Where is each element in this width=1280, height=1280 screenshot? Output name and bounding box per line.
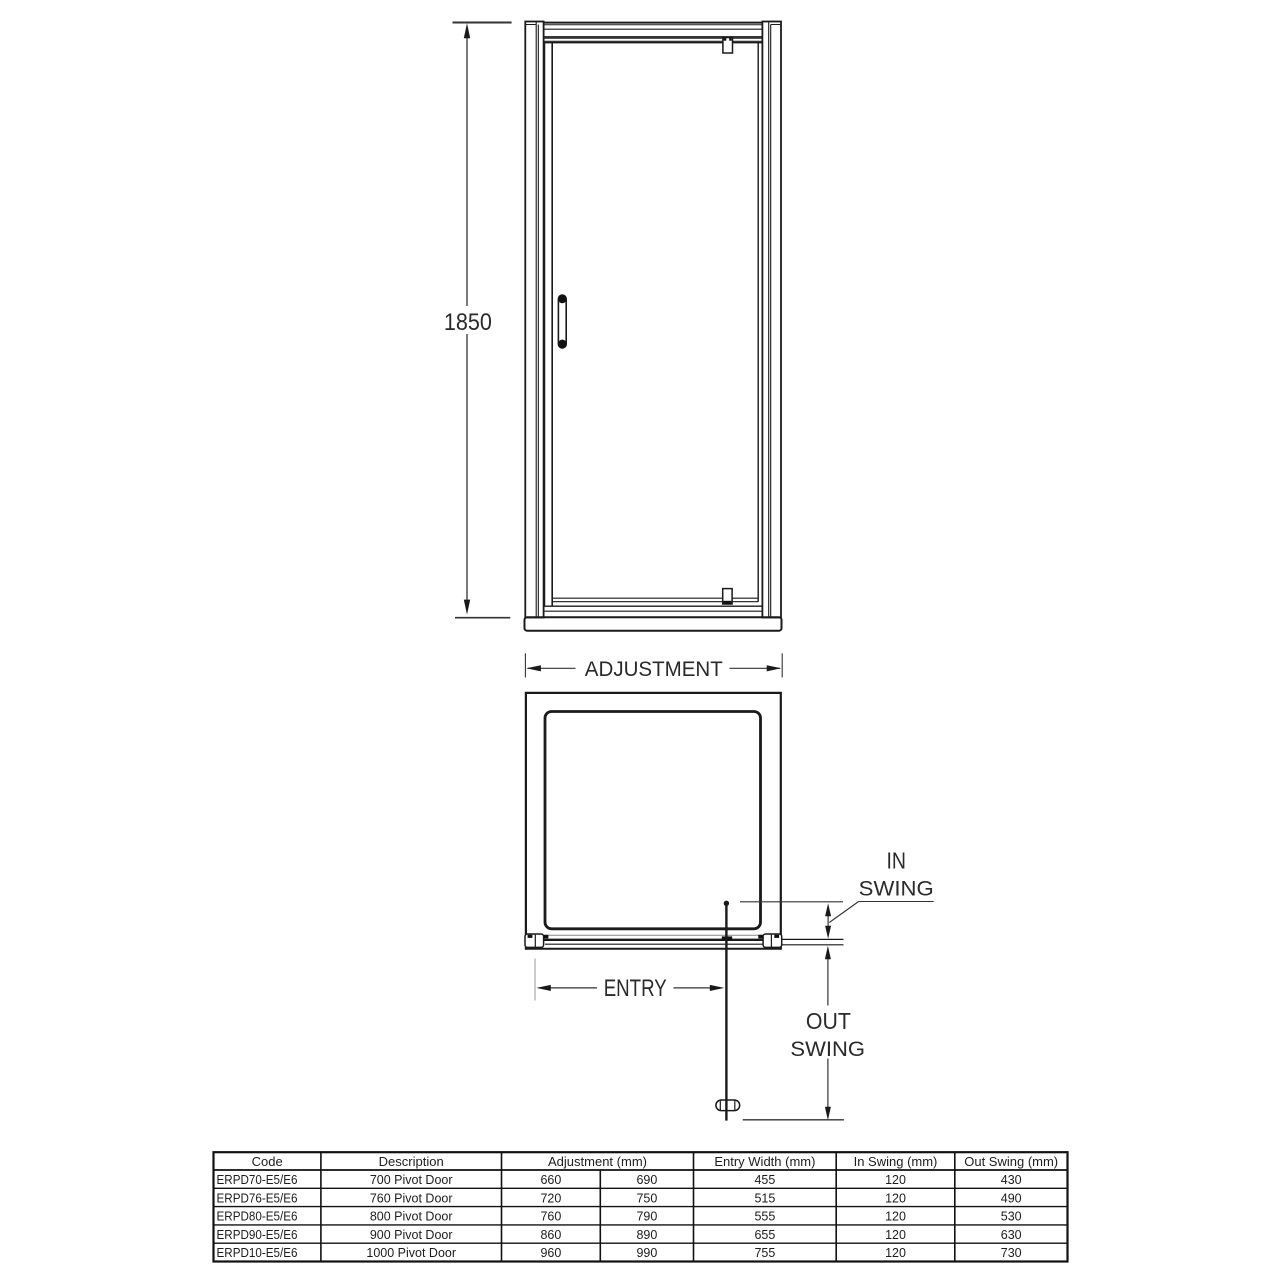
svg-text:760 Pivot Door: 760 Pivot Door	[370, 1191, 453, 1205]
svg-text:Adjustment (mm): Adjustment (mm)	[548, 1154, 647, 1169]
svg-text:890: 890	[636, 1228, 657, 1242]
svg-text:ERPD70-E5/E6: ERPD70-E5/E6	[217, 1173, 298, 1187]
svg-text:515: 515	[754, 1191, 775, 1205]
svg-text:SWING: SWING	[790, 1037, 865, 1061]
svg-text:SWING: SWING	[859, 877, 934, 901]
svg-text:Entry Width (mm): Entry Width (mm)	[714, 1154, 815, 1169]
svg-text:900 Pivot Door: 900 Pivot Door	[370, 1228, 453, 1242]
svg-text:860: 860	[540, 1228, 561, 1242]
svg-text:730: 730	[1001, 1246, 1022, 1260]
svg-text:655: 655	[754, 1228, 775, 1242]
svg-text:430: 430	[1001, 1173, 1022, 1187]
svg-text:Out Swing (mm): Out Swing (mm)	[964, 1154, 1058, 1169]
svg-text:Description: Description	[379, 1154, 444, 1169]
svg-text:720: 720	[540, 1191, 561, 1205]
svg-text:Code: Code	[252, 1154, 283, 1169]
svg-text:630: 630	[1001, 1228, 1022, 1242]
svg-text:990: 990	[636, 1246, 657, 1260]
svg-text:IN: IN	[886, 848, 906, 874]
svg-text:ERPD76-E5/E6: ERPD76-E5/E6	[217, 1191, 298, 1205]
svg-text:790: 790	[636, 1210, 657, 1224]
svg-text:OUT: OUT	[806, 1008, 851, 1034]
svg-text:960: 960	[540, 1246, 561, 1260]
svg-text:1850: 1850	[444, 309, 492, 336]
svg-text:ERPD80-E5/E6: ERPD80-E5/E6	[217, 1210, 298, 1224]
svg-text:ERPD90-E5/E6: ERPD90-E5/E6	[217, 1228, 298, 1242]
svg-text:455: 455	[754, 1173, 775, 1187]
svg-text:700 Pivot Door: 700 Pivot Door	[370, 1173, 453, 1187]
svg-text:555: 555	[754, 1210, 775, 1224]
svg-text:ADJUSTMENT: ADJUSTMENT	[585, 658, 723, 681]
svg-text:120: 120	[885, 1210, 906, 1224]
svg-text:800 Pivot Door: 800 Pivot Door	[370, 1210, 453, 1224]
svg-text:120: 120	[885, 1173, 906, 1187]
svg-text:490: 490	[1001, 1191, 1022, 1205]
svg-text:120: 120	[885, 1228, 906, 1242]
svg-text:760: 760	[540, 1210, 561, 1224]
svg-text:755: 755	[754, 1246, 775, 1260]
svg-text:In Swing (mm): In Swing (mm)	[854, 1154, 938, 1169]
svg-text:1000 Pivot Door: 1000 Pivot Door	[366, 1246, 456, 1260]
svg-text:ENTRY: ENTRY	[604, 975, 667, 1002]
svg-text:690: 690	[636, 1173, 657, 1187]
svg-text:660: 660	[540, 1173, 561, 1187]
svg-text:ERPD10-E5/E6: ERPD10-E5/E6	[217, 1246, 298, 1260]
svg-text:750: 750	[636, 1191, 657, 1205]
svg-text:530: 530	[1001, 1210, 1022, 1224]
svg-text:120: 120	[885, 1246, 906, 1260]
svg-text:120: 120	[885, 1191, 906, 1205]
